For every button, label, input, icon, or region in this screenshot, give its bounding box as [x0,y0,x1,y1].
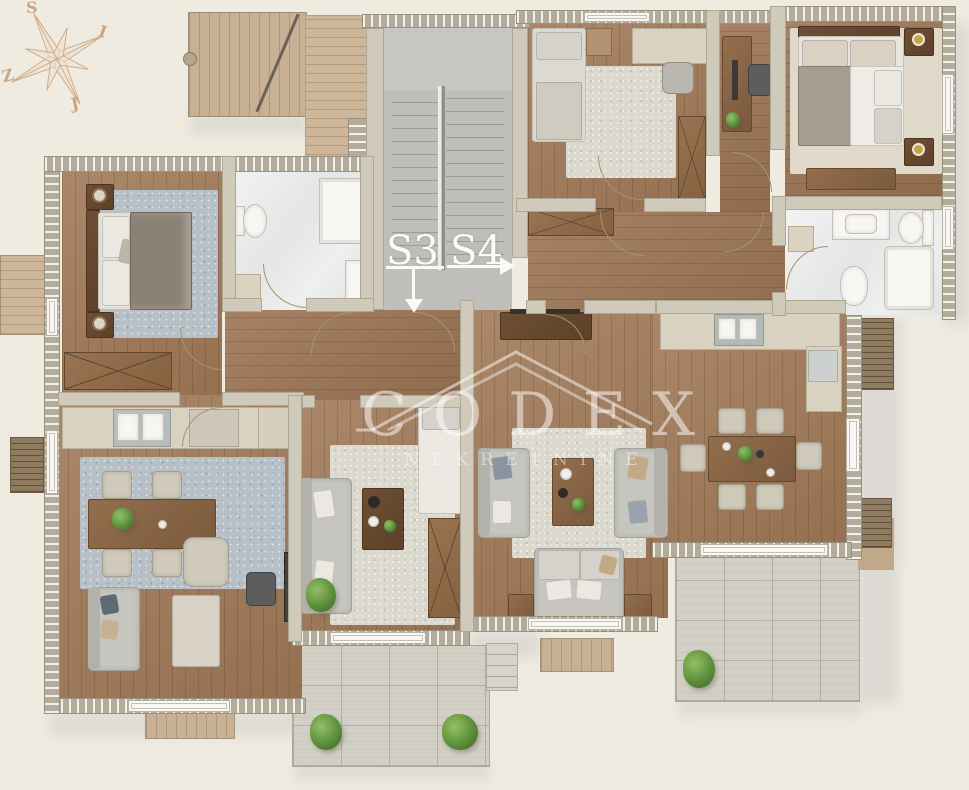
pillow [545,579,573,602]
bath-cabinet [788,226,814,252]
pillow-tan [100,619,119,640]
sliding-door [128,700,230,712]
wall [584,300,656,314]
compass-label-north: S [26,0,38,17]
wall [770,6,956,22]
sink-basin [739,318,757,340]
wall [288,395,302,642]
toilet [243,204,267,238]
window [46,430,58,494]
wall [222,298,262,312]
compass-star-icon [0,2,120,122]
blanket [536,82,582,140]
table-lamp [912,143,925,156]
balcony-door [846,418,860,472]
wall [460,300,474,632]
kitchen-cabinet [258,407,292,449]
pillow [850,40,896,68]
pillow [490,455,513,482]
wall [360,395,464,408]
tray [368,496,380,508]
sink-basin [142,413,164,441]
roof-deck [188,12,307,117]
pillow-blue [99,594,119,616]
wall [306,298,374,312]
wall [362,14,530,28]
blanket [798,66,852,146]
wall [44,156,382,172]
floor-plan: S3 S4 S I J Z CODEX NEKRETNI [0,0,969,790]
dining-chair [756,408,784,434]
dining-chair [102,549,132,577]
pillow [492,500,512,524]
table-lamp [912,33,925,46]
terrace-shadow [858,556,898,704]
office-chair [748,64,772,96]
blanket [130,212,192,310]
shrub [442,714,478,750]
monitor [732,60,738,100]
sink-basin [718,318,736,340]
table-plant [738,446,753,461]
wardrobe [64,352,172,390]
wall [58,392,180,406]
sofa-back [478,448,490,536]
stair-rail [442,86,445,270]
window-shutter [858,498,892,548]
dining-chair [152,471,182,499]
pillow [575,579,603,601]
west-balcony [0,255,48,335]
pillow [536,32,582,60]
sink-basin [845,214,877,234]
tray [558,488,568,498]
table-plant [384,520,396,532]
plate [560,468,572,480]
wall [785,196,942,210]
bottle [756,450,764,458]
pillow [874,70,902,106]
wardrobe [678,116,706,200]
shrub [683,650,715,688]
plate [722,442,731,451]
dining-chair [796,442,822,470]
dining-chair [102,471,132,499]
sliding-door [330,632,426,644]
plate [766,468,775,477]
compass-rose: S I J Z [0,0,122,120]
plant [726,112,740,128]
loveseat-back [538,550,580,580]
arrow-s3-bar [386,266,444,269]
wall [706,10,720,156]
arrow-s4-head [500,257,515,275]
sofa-back [88,587,100,669]
sliding-door [528,618,622,630]
dining-table [708,436,796,482]
toilet [898,212,924,244]
desk-chair [662,62,694,94]
wall [360,156,374,312]
wall [302,395,315,408]
stair-landing [384,28,512,90]
ottoman [172,595,220,667]
dining-chair [152,549,182,577]
table-lamp [92,188,107,203]
deck-shadow [190,114,308,134]
wall [516,198,596,212]
door-deck [540,638,614,672]
cooktop [808,350,838,382]
arrow-s3-head [405,299,423,313]
bed-bench [806,168,896,190]
wall [644,198,706,212]
pillow [802,40,848,68]
wall [772,292,786,316]
pillow [312,489,336,520]
shower [319,178,365,244]
plate [158,520,167,529]
desk-chair [246,572,276,606]
table-plant [112,508,134,530]
table-lamp [92,316,107,331]
sink-basin [117,413,139,441]
deck-post [183,52,197,66]
pillow [102,260,130,306]
shrub [310,714,342,750]
dining-chair [756,484,784,510]
wall [656,300,846,314]
window-shutter [858,318,894,390]
window [46,298,58,336]
desk [632,28,708,64]
terrace-steps [486,643,518,691]
wall [526,300,546,314]
window [942,206,954,250]
pillow [627,499,649,525]
window [584,12,650,22]
plant [306,578,336,612]
sliding-door [700,544,828,556]
wall [772,196,786,246]
pillow [874,108,902,144]
wall [222,156,236,312]
shower [884,246,934,310]
lounge-chair [183,537,229,587]
arrow-s3-stem [412,266,415,300]
dining-chair [718,484,746,510]
plate [368,516,379,527]
pillow [626,454,650,481]
window [942,74,954,134]
wardrobe [428,518,462,618]
arrow-s4-bar [447,265,501,268]
window-shutter [10,437,44,493]
dining-chair [680,444,706,472]
bedside-unit [586,28,612,56]
wall [770,6,786,150]
dining-chair [718,408,746,434]
table-plant [572,498,585,511]
wall [942,6,956,320]
wall [512,28,528,258]
sofa-back [654,448,666,536]
